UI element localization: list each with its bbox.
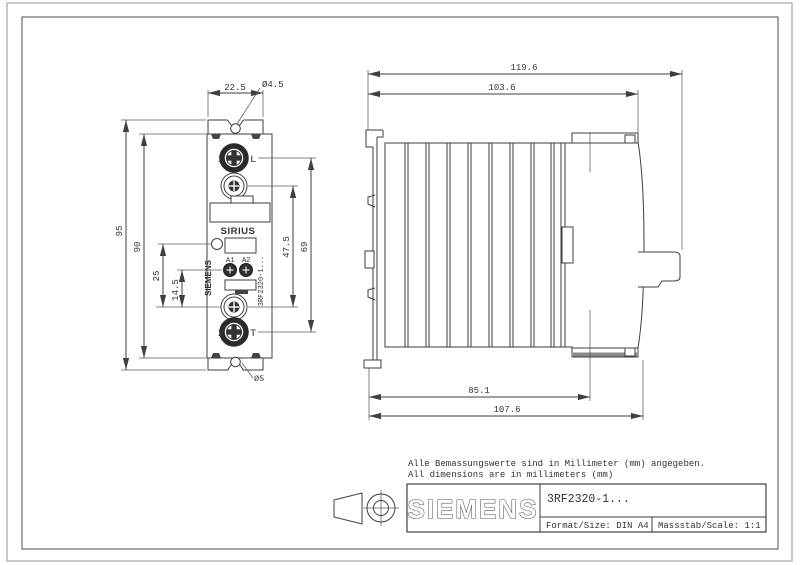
terminal-2-label: T: [250, 328, 256, 340]
terminal-1-label: L: [250, 154, 256, 166]
title-part-number: 3RF2320-1...: [547, 493, 630, 506]
siemens-logo: SIEMENS: [407, 494, 538, 524]
brand-vertical-label: SIEMENS: [204, 259, 213, 296]
upper-cable-screw: [221, 173, 247, 199]
front-top-mounting-tab: [208, 119, 263, 134]
front-bottom-mounting-tab: [208, 357, 263, 371]
dim-depth-overall: 119.6: [510, 63, 537, 73]
terminal-2-number: 2: [218, 328, 224, 340]
dim-screw-span: 47.5: [282, 236, 292, 258]
dim-terminal-span: 69: [300, 242, 310, 253]
dim-width-top: 22.5: [224, 83, 246, 93]
bracket-foot: [364, 360, 381, 368]
note-en: All dimensions are in millimeters (mm): [408, 470, 613, 480]
terminal-1-number: 1: [218, 154, 224, 166]
label-window: [225, 238, 256, 253]
lower-cable-screw: [221, 294, 247, 320]
heatsink: [385, 143, 565, 347]
dim-hole-bottom: Ø5: [254, 374, 264, 384]
dim-depth-back: 107.6: [493, 405, 520, 415]
dim-led-offset: 25: [152, 271, 162, 282]
note-de: Alle Bemassungswerte sind in Millimeter …: [408, 459, 705, 469]
dim-hole-top: Ø4.5: [262, 80, 284, 90]
small-top-tab: [231, 196, 253, 203]
dim-height-body: 90: [133, 242, 143, 253]
product-line-label: SIRIUS: [221, 226, 256, 237]
bottom-keyhole-hole: [231, 357, 241, 367]
dim-depth-din: 85.1: [468, 386, 490, 396]
title-block: SIEMENS 3RF2320-1... Format/Size: DIN A4…: [407, 484, 766, 532]
title-scale: Massstab/Scale: 1:1: [658, 521, 761, 531]
title-format: Format/Size: DIN A4: [546, 521, 649, 531]
mid-clip: [562, 227, 573, 263]
blank-label-panel: [210, 203, 270, 222]
dim-height-overall: 95: [115, 226, 125, 237]
dim-coil-offset: 14.5: [171, 279, 181, 301]
status-led: [212, 239, 223, 250]
part-number-vertical: 3RF2320-1...: [258, 256, 266, 306]
top-keyhole-hole: [231, 124, 241, 134]
dim-depth-body: 103.6: [488, 83, 515, 93]
technical-drawing: 1 L SIRIUS A1 A2: [0, 0, 800, 565]
